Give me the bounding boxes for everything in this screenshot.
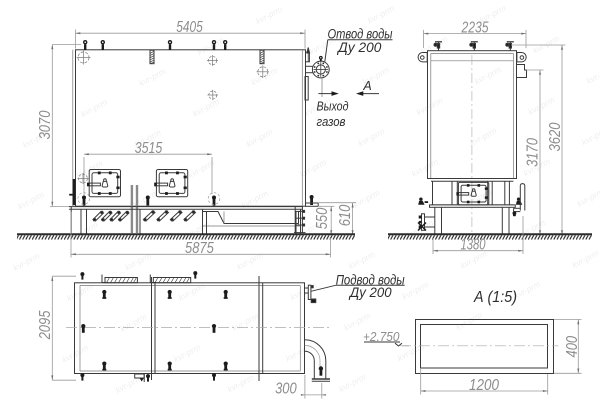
svg-text:Ду 200: Ду 200: [336, 40, 382, 55]
svg-text:5405: 5405: [176, 19, 203, 36]
svg-text:газов: газов: [317, 114, 346, 129]
svg-text:5875: 5875: [185, 240, 214, 257]
svg-text:1200: 1200: [469, 377, 499, 394]
svg-text:610: 610: [337, 205, 354, 227]
svg-text:2095: 2095: [37, 311, 54, 341]
svg-text:А: А: [362, 79, 371, 93]
svg-text:3070: 3070: [37, 111, 54, 140]
svg-text:А (1:5): А (1:5): [473, 289, 517, 306]
svg-text:400: 400: [564, 336, 581, 358]
svg-text:550: 550: [314, 208, 331, 230]
svg-text:3170: 3170: [524, 138, 541, 167]
svg-text:2235: 2235: [461, 20, 489, 37]
svg-text:+2.750: +2.750: [363, 330, 399, 344]
svg-text:3515: 3515: [135, 140, 163, 157]
svg-text:3620: 3620: [547, 123, 564, 152]
svg-text:Ду 200: Ду 200: [348, 285, 392, 300]
svg-text:1380: 1380: [461, 237, 486, 254]
svg-text:Выход: Выход: [317, 99, 349, 114]
svg-text:300: 300: [275, 380, 297, 397]
